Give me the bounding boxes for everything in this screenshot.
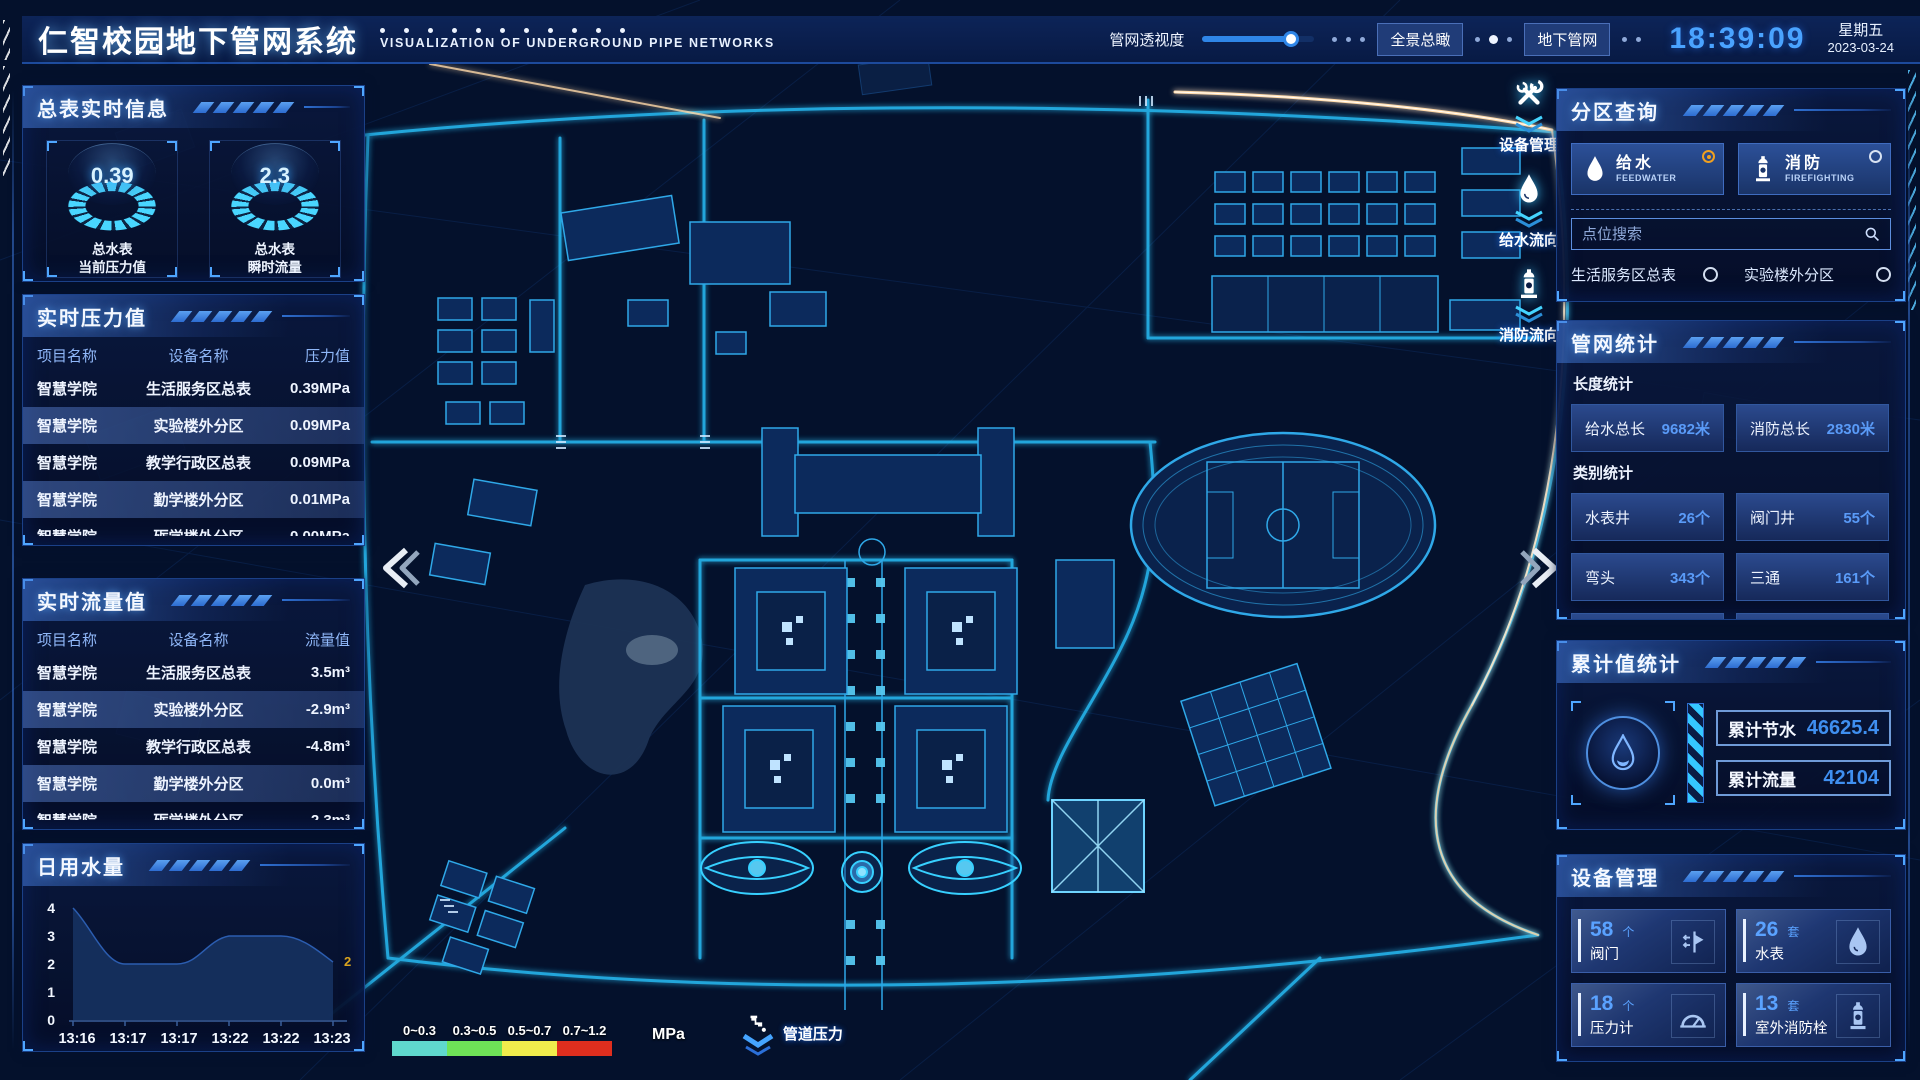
table-row[interactable]: 智慧学院砺学楼外分区0.00MPa [23, 518, 364, 536]
table-row[interactable]: 智慧学院砺学楼外分区2.3m³ [23, 802, 364, 820]
gauge-value: 0.39 [62, 163, 162, 189]
stat-chip: 弯头343个 [1571, 553, 1724, 601]
toolbar-device-management[interactable]: 设备管理 [1499, 74, 1559, 155]
left-edge-hash-decor [3, 66, 10, 176]
svg-text:13:17: 13:17 [160, 1031, 197, 1047]
device-card-pressure-gauge[interactable]: 18个 压力计 [1571, 983, 1726, 1047]
svg-text:13:22: 13:22 [262, 1031, 299, 1047]
panel-header: 实时流量值 [23, 579, 364, 621]
legend-color [392, 1041, 447, 1056]
legend-color [502, 1041, 557, 1056]
cumulative-water-saved: 累计节水46625.4 [1716, 710, 1891, 746]
slash-decor [1687, 337, 1780, 348]
panel-title: 设备管理 [1571, 862, 1659, 891]
zone-point-item[interactable]: 教学行政区总表 [1571, 300, 1718, 303]
clock: 18:39:09 [1669, 22, 1805, 56]
chevron-down-icon [1514, 210, 1544, 228]
dashed-divider [1571, 209, 1891, 210]
table-row[interactable]: 智慧学院实验楼外分区0.09MPa [23, 407, 364, 444]
stat-chip: 给水总长9682米 [1571, 404, 1724, 452]
panel-header: 设备管理 [1557, 855, 1905, 897]
panel-zone-query: 分区查询 给水FEEDWATER 消防FIREFIGHTING [1556, 88, 1906, 302]
pipe-pressure-marker: 管道压力 [741, 1014, 843, 1056]
device-card-valve[interactable]: 58个 阀门 [1571, 909, 1726, 973]
water-drop-badge [1586, 716, 1660, 790]
svg-text:2: 2 [344, 954, 351, 969]
svg-text:13:17: 13:17 [109, 1031, 146, 1047]
table-row[interactable]: 智慧学院生活服务区总表3.5m³ [23, 654, 364, 691]
dashboard: 仁智校园地下管网系统 VISUALIZATION OF UNDERGROUND … [0, 0, 1920, 1080]
stat-chip: 消防总长2830米 [1736, 404, 1889, 452]
chevron-down-icon [741, 1034, 775, 1056]
gauge-flow: 2.3 总水表 瞬时流量 [209, 140, 341, 278]
table-body: 智慧学院生活服务区总表0.39MPa 智慧学院实验楼外分区0.09MPa 智慧学… [23, 370, 364, 536]
water-drop-icon [1608, 734, 1638, 772]
header-line-decor [1794, 875, 1891, 877]
chevron-down-icon [1514, 305, 1544, 323]
pressure-gauge-icon [1678, 1002, 1708, 1030]
pipe-pressure-icon [748, 1014, 768, 1034]
slash-decor [197, 102, 290, 113]
slash-decor [1687, 871, 1780, 882]
zone-point-item[interactable]: 实验楼外分区 [1744, 264, 1891, 285]
category-stats-grid: 水表井26个 阀门井55个 弯头343个 三通161个 [1557, 487, 1905, 620]
header-line-decor [1816, 661, 1891, 663]
daily-usage-chart: 4 3 2 1 0 13:16 13:17 13:17 13:22 13:22 … [23, 886, 364, 1052]
panel-device-management: 设备管理 58个 阀门 26套 水表 [1556, 854, 1906, 1062]
legend-segment: 0~0.3 [392, 1023, 447, 1056]
stat-chip: 阀门井55个 [1736, 493, 1889, 541]
left-rail-decor [12, 90, 14, 1050]
list-row: 教学行政区总表 勤学楼外分区 [1571, 292, 1891, 302]
slash-decor [175, 595, 268, 606]
water-drop-icon [1584, 155, 1606, 183]
cumulative-content: 累计节水46625.4 累计流量42104 [1557, 683, 1905, 805]
toolbar-feedwater-flow[interactable]: 给水流向 [1499, 169, 1559, 250]
fire-hydrant-icon [1515, 268, 1543, 300]
table-row[interactable]: 智慧学院教学行政区总表-4.8m³ [23, 728, 364, 765]
stat-chip-clipped [1736, 613, 1889, 620]
date-block: 星期五 2023-03-24 [1828, 22, 1895, 57]
device-cards: 58个 阀门 26套 水表 18个 压力计 [1557, 897, 1905, 1047]
dot-separator [1475, 35, 1512, 44]
search-icon [1864, 226, 1880, 242]
slash-decor [1709, 657, 1802, 668]
weekday: 星期五 [1838, 22, 1883, 41]
panel-title: 总表实时信息 [37, 93, 169, 122]
dot-separator [1622, 37, 1641, 42]
water-drop-icon [1516, 173, 1542, 205]
header-line-decor [304, 106, 350, 108]
stat-chip: 水表井26个 [1571, 493, 1724, 541]
svg-text:2: 2 [47, 956, 55, 972]
gauge-label: 总水表 当前压力值 [47, 241, 177, 277]
table-row[interactable]: 智慧学院勤学楼外分区0.01MPa [23, 481, 364, 518]
header-controls: 管网透视度 全景总瞰 地下管网 18:39:09 星期五 2023-03-24 [1109, 22, 1920, 57]
length-stats-row: 给水总长9682米 消防总长2830米 [1557, 398, 1905, 452]
header-line-decor [1794, 341, 1891, 343]
gauge-value: 2.3 [225, 163, 325, 189]
pressure-legend: 0~0.3 0.3~0.5 0.5~0.7 0.7~1.2 MPa [392, 1014, 843, 1056]
panel-header: 管网统计 [1557, 321, 1905, 363]
pipe-pressure-icon-block [741, 1014, 775, 1056]
header-line-decor [1794, 109, 1891, 111]
header-line-decor [282, 315, 350, 317]
legend-segment: 0.7~1.2 [557, 1023, 612, 1056]
chevron-down-icon [1514, 115, 1544, 133]
zone-mode-buttons: 给水FEEDWATER 消防FIREFIGHTING [1557, 131, 1905, 203]
table-header: 项目名称 设备名称 流量值 [23, 621, 364, 654]
hazard-stripe-decor [1687, 703, 1704, 803]
panel-daily-usage: 日用水量 4 3 2 1 0 13:16 13:17 [22, 843, 365, 1052]
cumulative-fields: 累计节水46625.4 累计流量42104 [1716, 710, 1891, 796]
svg-text:3: 3 [47, 928, 55, 944]
panel-flow-table: 实时流量值 项目名称 设备名称 流量值 智慧学院生活服务区总表3.5m³ 智慧学… [22, 578, 365, 830]
panel-header: 总表实时信息 [23, 86, 364, 128]
underground-pipes-button[interactable]: 地下管网 [1524, 23, 1610, 56]
gauge-row: 0.39 总水表 当前压力值 2.3 总水表 瞬时流量 [23, 128, 364, 278]
slash-decor [153, 860, 246, 871]
legend-color [447, 1041, 502, 1056]
toolbar-firefighting-flow[interactable]: 消防流向 [1499, 264, 1559, 345]
panel-network-stats: 管网统计 长度统计 给水总长9682米 消防总长2830米 类别统计 水表井26… [1556, 320, 1906, 620]
right-rail-decor [1908, 90, 1910, 1050]
legend-segment: 0.3~0.5 [447, 1023, 502, 1056]
point-search-input[interactable] [1582, 226, 1864, 243]
panel-header: 分区查询 [1557, 89, 1905, 131]
slider-fill [1202, 36, 1292, 42]
map-toolbar: 设备管理 给水流向 消防流向 [1492, 74, 1566, 345]
svg-text:13:22: 13:22 [211, 1031, 248, 1047]
pipe-opacity-slider[interactable] [1202, 36, 1314, 42]
date: 2023-03-24 [1828, 40, 1895, 56]
app-title: 仁智校园地下管网系统 [38, 17, 358, 61]
panel-title: 实时流量值 [37, 586, 147, 615]
radio-circle[interactable] [1703, 267, 1718, 282]
length-stats-label: 长度统计 [1557, 363, 1905, 398]
slider-thumb[interactable] [1283, 31, 1299, 47]
firefighting-button[interactable]: 消防FIREFIGHTING [1738, 143, 1891, 195]
table-row[interactable]: 智慧学院勤学楼外分区0.0m³ [23, 765, 364, 802]
panel-title: 实时压力值 [37, 302, 147, 331]
table-row[interactable]: 智慧学院实验楼外分区-2.9m³ [23, 691, 364, 728]
table-body: 智慧学院生活服务区总表3.5m³ 智慧学院实验楼外分区-2.9m³ 智慧学院教学… [23, 654, 364, 820]
zone-point-list: 生活服务区总表 实验楼外分区 教学行政区总表 勤学楼外分区 砺学楼外分区 宿舍区… [1557, 254, 1905, 302]
category-stats-label: 类别统计 [1557, 452, 1905, 487]
svg-text:1: 1 [47, 984, 55, 1000]
legend-segment: 0.5~0.7 [502, 1023, 557, 1056]
water-drop-icon [1845, 926, 1871, 958]
feedwater-button[interactable]: 给水FEEDWATER [1571, 143, 1724, 195]
device-card-hydrant[interactable]: 13套 室外消防栓 [1736, 983, 1891, 1047]
firefighting-radio[interactable] [1869, 150, 1882, 163]
tools-icon [1512, 77, 1546, 111]
table-row[interactable]: 智慧学院生活服务区总表0.39MPa [23, 370, 364, 407]
header-line-decor [260, 864, 350, 866]
feedwater-radio[interactable] [1702, 150, 1715, 163]
panel-title: 累计值统计 [1571, 648, 1681, 677]
water-icon-frame [1571, 701, 1675, 805]
panel-title: 管网统计 [1571, 328, 1659, 357]
gauge-visual: 2.3 [225, 147, 325, 231]
panel-header: 日用水量 [23, 844, 364, 886]
svg-text:4: 4 [47, 900, 55, 916]
device-card-water-meter[interactable]: 26套 水表 [1736, 909, 1891, 973]
stat-chip: 三通161个 [1736, 553, 1889, 601]
panel-cumulative: 累计值统计 累计节水46625.4 [1556, 640, 1906, 830]
panel-title: 分区查询 [1571, 96, 1659, 125]
fire-hydrant-icon [1751, 155, 1775, 183]
gauge-label: 总水表 瞬时流量 [210, 241, 340, 277]
svg-text:0: 0 [47, 1012, 55, 1028]
slash-decor [1687, 105, 1780, 116]
opacity-slider-label: 管网透视度 [1109, 29, 1184, 50]
app-subtitle: VISUALIZATION OF UNDERGROUND PIPE NETWOR… [380, 36, 775, 50]
title-dots-decor [380, 28, 775, 33]
panel-header: 实时压力值 [23, 295, 364, 337]
slash-decor [175, 311, 268, 322]
title-sub-block: VISUALIZATION OF UNDERGROUND PIPE NETWOR… [380, 28, 775, 50]
dot-separator [1332, 37, 1365, 42]
radio-circle[interactable] [1876, 267, 1891, 282]
svg-text:13:16: 13:16 [58, 1031, 95, 1047]
gauge-visual: 0.39 [62, 147, 162, 231]
panel-meter-info: 总表实时信息 0.39 总水表 当前压力值 [22, 85, 365, 282]
legend-color [557, 1041, 612, 1056]
table-row[interactable]: 智慧学院教学行政区总表0.09MPa [23, 444, 364, 481]
header-line-decor [282, 599, 350, 601]
zone-point-item[interactable]: 勤学楼外分区 [1744, 300, 1891, 303]
header-bar: 仁智校园地下管网系统 VISUALIZATION OF UNDERGROUND … [22, 16, 1920, 64]
header-left-hash-decor [3, 20, 10, 60]
panel-title: 日用水量 [37, 851, 125, 880]
zone-point-item[interactable]: 生活服务区总表 [1571, 264, 1718, 285]
legend-unit: MPa [652, 1026, 685, 1044]
stat-chip-clipped [1571, 613, 1724, 620]
panel-header: 累计值统计 [1557, 641, 1905, 683]
pan-left-arrow[interactable] [378, 545, 422, 591]
list-row: 生活服务区总表 实验楼外分区 [1571, 256, 1891, 292]
cumulative-flow: 累计流量42104 [1716, 760, 1891, 796]
fire-hydrant-icon [1845, 1001, 1871, 1031]
table-header: 项目名称 设备名称 压力值 [23, 337, 364, 370]
pipe-pressure-label: 管道压力 [783, 1023, 843, 1044]
search-box[interactable] [1571, 218, 1891, 250]
panel-pressure-table: 实时压力值 项目名称 设备名称 压力值 智慧学院生活服务区总表0.39MPa 智… [22, 294, 365, 546]
svg-text:13:23: 13:23 [313, 1031, 350, 1047]
valve-icon [1678, 927, 1708, 957]
overview-button[interactable]: 全景总瞰 [1377, 23, 1463, 56]
gauge-pressure: 0.39 总水表 当前压力值 [46, 140, 178, 278]
